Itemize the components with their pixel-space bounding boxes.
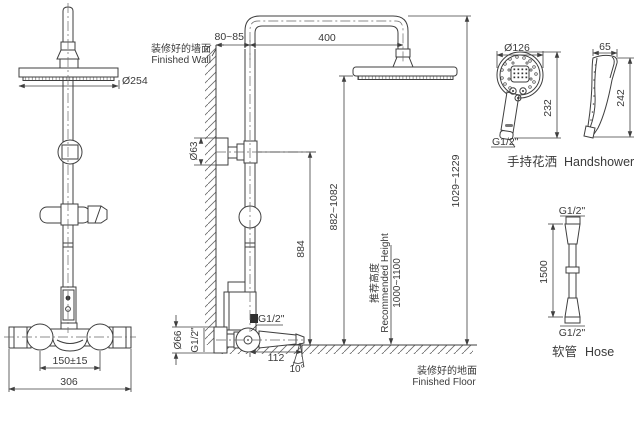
dim-spout-angle: 10° <box>289 364 304 375</box>
dim-spout-reach: 112 <box>268 352 285 364</box>
handshower-detail <box>491 49 634 147</box>
hose-drawing <box>565 217 580 323</box>
inlet-thread-label: G1/2" <box>190 327 201 353</box>
technical-drawing-page: Ø254 150±15 306 装修好的墙面 Finished Wall 80~… <box>0 0 640 427</box>
overhead-shower-side <box>353 67 457 80</box>
handle-logo <box>505 124 513 127</box>
dim-wall-offset: 80~85 <box>215 31 245 43</box>
rec-height-range: 1000~1100 <box>392 258 403 308</box>
handshower-label-en: Handshower <box>564 155 634 169</box>
labels: Ø254 150±15 306 装修好的墙面 Finished Wall 80~… <box>53 31 635 388</box>
overhead-shower-front <box>19 68 118 81</box>
dim-face-dia: Ø126 <box>504 42 530 54</box>
wall-label-en: Finished Wall <box>151 55 211 66</box>
dim-valve-height: 884 <box>295 240 307 258</box>
hose-thread-top-label: G1/2" <box>559 205 586 217</box>
handshower-thread-label: G1/2" <box>492 136 519 148</box>
floor-label-cn: 装修好的地面 <box>417 364 477 377</box>
wall-label-cn: 装修好的墙面 <box>151 42 211 55</box>
dim-handle-spacing: 150±15 <box>53 355 88 367</box>
shower-system-dimension-drawing: Ø254 150±15 306 装修好的墙面 Finished Wall 80~… <box>0 0 640 427</box>
dim-head-diameter: Ø254 <box>122 75 148 87</box>
outlet-thread-label: G1/2" <box>258 313 285 325</box>
dim-inlet-escutcheon: Ø66 <box>173 330 184 349</box>
dim-handshower-side-height: 242 <box>615 89 627 107</box>
rec-height-en: Recommended Height <box>380 233 391 333</box>
wall-section <box>205 45 224 345</box>
dim-handshower-width: 65 <box>599 41 611 53</box>
slider-ball-front <box>58 140 82 164</box>
dim-arm-reach: 400 <box>318 32 336 44</box>
front-view <box>4 3 136 392</box>
floor-label-en: Finished Floor <box>412 377 476 388</box>
handshower-label-cn: 手持花洒 <box>507 154 557 169</box>
diverter-control-front <box>61 287 76 323</box>
hose-label-cn: 软管 <box>552 344 577 359</box>
dim-handshower-front-height: 232 <box>542 99 554 117</box>
hose-detail <box>548 216 585 326</box>
side-view <box>172 16 477 367</box>
dim-hose-length: 1500 <box>538 260 550 284</box>
hose-label-en: Hose <box>585 345 614 359</box>
dim-overall-height: 1029~1229 <box>450 154 462 207</box>
handshower-side-view <box>584 55 617 138</box>
dim-body-width: 306 <box>60 376 78 388</box>
dim-head-face-height: 882~1082 <box>328 183 340 230</box>
handshower-front-view <box>497 52 543 140</box>
dim-escutcheon-dia: Ø63 <box>189 141 200 160</box>
handshower-holder-front <box>40 204 107 225</box>
wall-union-side <box>216 138 257 165</box>
hose-thread-bottom-label: G1/2" <box>559 327 586 339</box>
